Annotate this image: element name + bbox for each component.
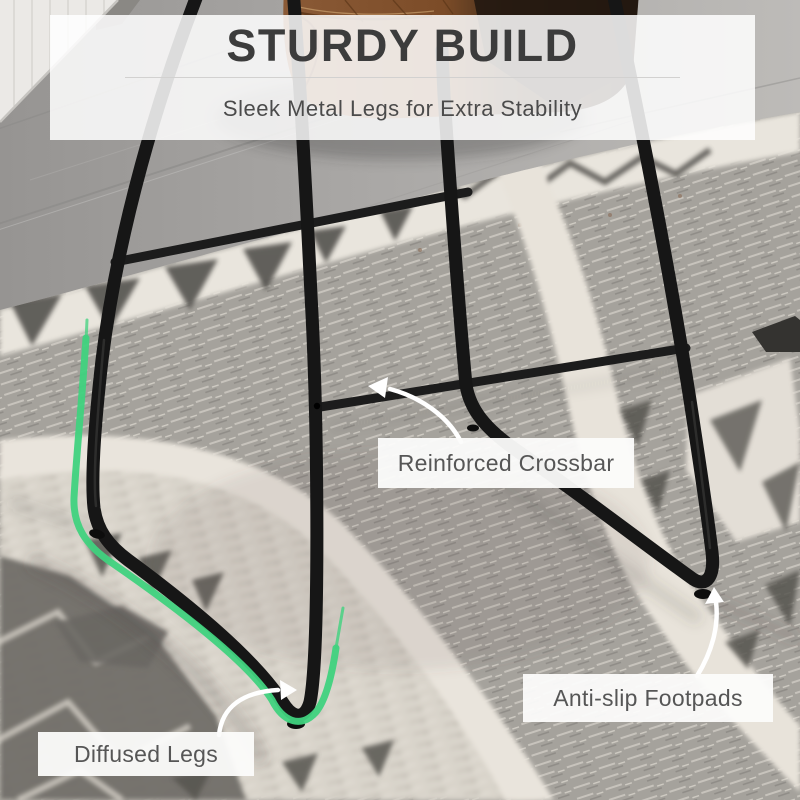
crossbar-bolt xyxy=(314,403,320,409)
callout-anti-slip-footpads: Anti-slip Footpads xyxy=(523,674,773,722)
callout-reinforced-crossbar: Reinforced Crossbar xyxy=(378,438,634,488)
callout-label: Reinforced Crossbar xyxy=(398,450,615,477)
page-subtitle: Sleek Metal Legs for Extra Stability xyxy=(50,78,755,140)
product-feature-image: STURDY BUILD Sleek Metal Legs for Extra … xyxy=(0,0,800,800)
header-banner: STURDY BUILD Sleek Metal Legs for Extra … xyxy=(50,15,755,140)
callout-label: Anti-slip Footpads xyxy=(553,685,743,712)
page-title: STURDY BUILD xyxy=(50,15,755,77)
callout-diffused-legs: Diffused Legs xyxy=(38,732,254,776)
callout-label: Diffused Legs xyxy=(74,741,218,768)
